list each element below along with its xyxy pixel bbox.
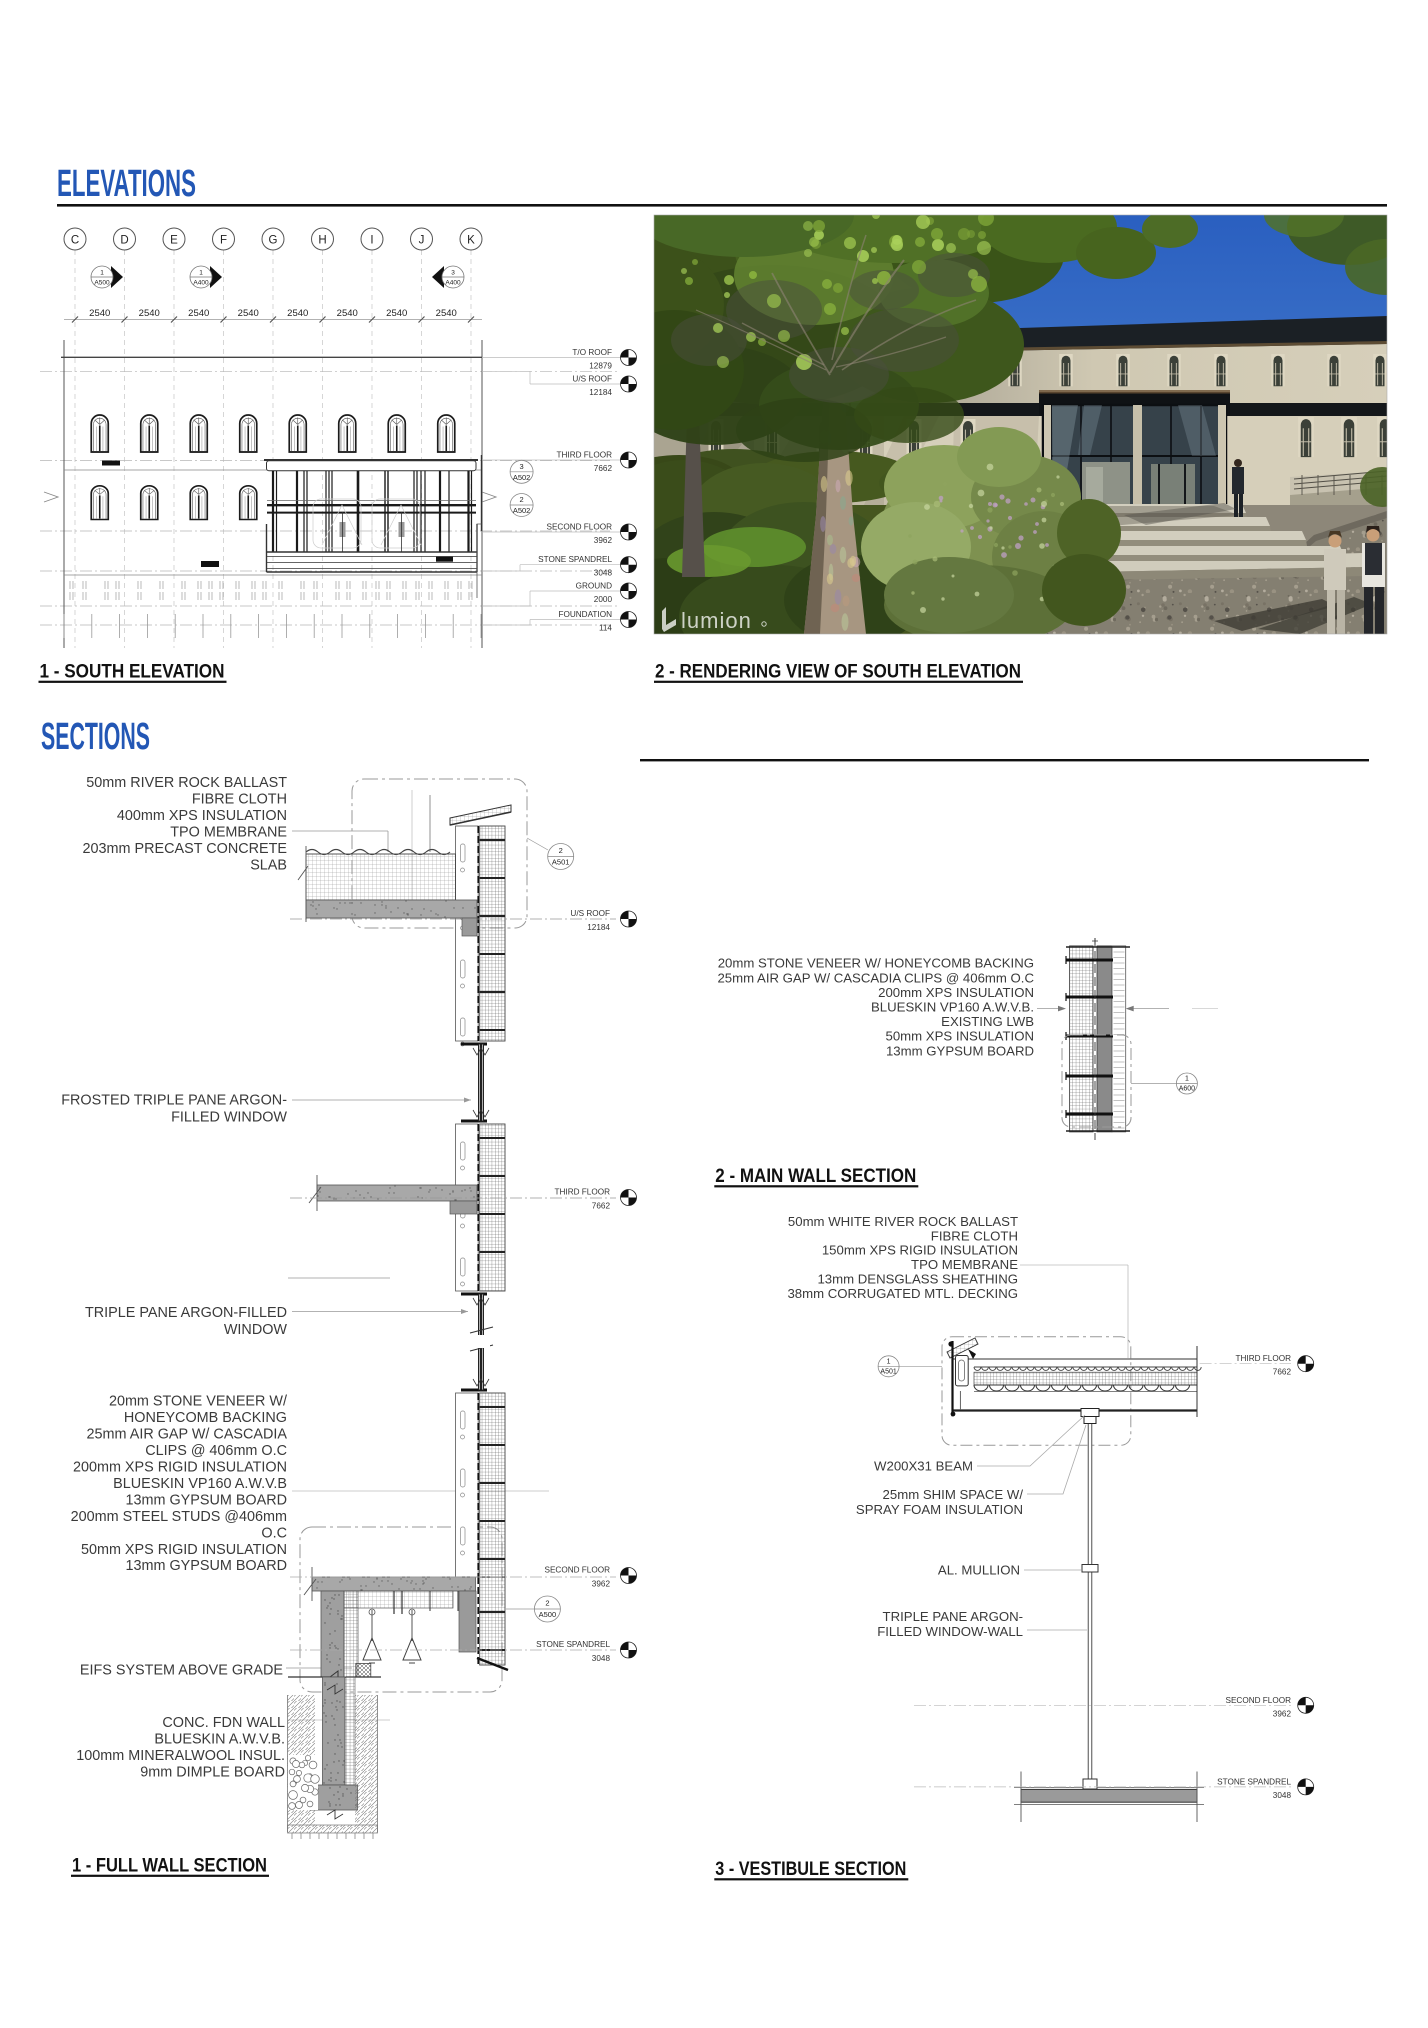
svg-text:2 - MAIN WALL SECTION: 2 - MAIN WALL SECTION xyxy=(715,1165,916,1187)
svg-text:20mm STONE VENEER W/ HONEYCOMB: 20mm STONE VENEER W/ HONEYCOMB BACKING xyxy=(718,956,1034,971)
svg-text:2540: 2540 xyxy=(238,308,259,319)
svg-text:3 - VESTIBULE SECTION: 3 - VESTIBULE SECTION xyxy=(715,1858,906,1880)
svg-text:203mm PRECAST CONCRETE: 203mm PRECAST CONCRETE xyxy=(83,841,287,857)
svg-text:150mm XPS RIGID INSULATION: 150mm XPS RIGID INSULATION xyxy=(822,1243,1018,1258)
svg-text:12879: 12879 xyxy=(589,362,612,371)
svg-text:FOUNDATION: FOUNDATION xyxy=(558,610,612,619)
svg-text:200mm XPS INSULATION: 200mm XPS INSULATION xyxy=(878,985,1034,1000)
svg-text:1 - FULL WALL SECTION: 1 - FULL WALL SECTION xyxy=(72,1855,267,1877)
svg-text:1: 1 xyxy=(887,1358,891,1365)
svg-text:CLIPS @ 406mm O.C: CLIPS @ 406mm O.C xyxy=(145,1443,287,1459)
svg-text:F: F xyxy=(220,235,227,247)
svg-text:SECOND FLOOR: SECOND FLOOR xyxy=(1225,1696,1291,1705)
svg-text:2540: 2540 xyxy=(436,308,457,319)
svg-text:TPO MEMBRANE: TPO MEMBRANE xyxy=(911,1257,1018,1272)
svg-text:I: I xyxy=(370,235,373,247)
svg-text:A502: A502 xyxy=(513,506,531,515)
svg-text:FILLED WINDOW-WALL: FILLED WINDOW-WALL xyxy=(877,1624,1023,1639)
svg-text:THIRD FLOOR: THIRD FLOOR xyxy=(555,1188,611,1197)
svg-text:12184: 12184 xyxy=(589,388,612,397)
svg-text:J: J xyxy=(419,235,425,247)
svg-text:A400: A400 xyxy=(193,280,209,287)
svg-text:A400: A400 xyxy=(445,280,461,287)
svg-text:20mm STONE VENEER W/: 20mm STONE VENEER W/ xyxy=(109,1394,287,1410)
svg-text:TPO MEMBRANE: TPO MEMBRANE xyxy=(170,825,287,841)
svg-text:A500: A500 xyxy=(94,280,110,287)
svg-text:O.C: O.C xyxy=(261,1525,287,1541)
svg-text:FILLED WINDOW: FILLED WINDOW xyxy=(171,1110,287,1126)
svg-text:W200X31 BEAM: W200X31 BEAM xyxy=(874,1458,973,1473)
svg-text:U/S ROOF: U/S ROOF xyxy=(572,375,612,384)
svg-text:K: K xyxy=(467,235,475,247)
svg-text:SECTIONS: SECTIONS xyxy=(41,716,150,758)
svg-text:100mm MINERALWOOL INSUL.: 100mm MINERALWOOL INSUL. xyxy=(76,1748,285,1764)
svg-text:3048: 3048 xyxy=(594,569,613,578)
svg-text:2: 2 xyxy=(545,1599,549,1608)
svg-text:STONE SPANDREL: STONE SPANDREL xyxy=(536,1640,610,1649)
svg-text:A501: A501 xyxy=(552,858,570,867)
svg-text:ELEVATIONS: ELEVATIONS xyxy=(57,163,196,205)
svg-text:7662: 7662 xyxy=(594,464,613,473)
svg-text:50mm WHITE RIVER ROCK BALLAST: 50mm WHITE RIVER ROCK BALLAST xyxy=(788,1214,1018,1229)
svg-text:400mm XPS INSULATION: 400mm XPS INSULATION xyxy=(117,808,287,824)
svg-text:2000: 2000 xyxy=(594,595,613,604)
svg-text:CONC. FDN WALL: CONC. FDN WALL xyxy=(162,1715,285,1731)
svg-text:1 - SOUTH ELEVATION: 1 - SOUTH ELEVATION xyxy=(40,661,225,683)
svg-text:3048: 3048 xyxy=(1273,1791,1292,1800)
svg-text:FROSTED TRIPLE PANE ARGON-: FROSTED TRIPLE PANE ARGON- xyxy=(61,1093,287,1109)
svg-text:3962: 3962 xyxy=(594,536,613,545)
svg-text:A500: A500 xyxy=(539,1610,557,1619)
svg-text:2540: 2540 xyxy=(386,308,407,319)
svg-text:13mm DENSGLASS SHEATHING: 13mm DENSGLASS SHEATHING xyxy=(817,1272,1018,1287)
svg-text:SECOND FLOOR: SECOND FLOOR xyxy=(546,523,612,532)
svg-text:STONE SPANDREL: STONE SPANDREL xyxy=(538,555,612,564)
svg-text:BLUESKIN VP160 A.W.V.B: BLUESKIN VP160 A.W.V.B xyxy=(113,1476,287,1492)
svg-text:7662: 7662 xyxy=(592,1202,611,1211)
svg-text:TRIPLE PANE ARGON-FILLED: TRIPLE PANE ARGON-FILLED xyxy=(85,1305,287,1321)
svg-text:200mm STEEL STUDS @406mm: 200mm STEEL STUDS @406mm xyxy=(71,1509,287,1525)
svg-text:SECOND FLOOR: SECOND FLOOR xyxy=(544,1566,610,1575)
svg-text:1: 1 xyxy=(100,270,104,277)
svg-text:38mm CORRUGATED MTL. DECKING: 38mm CORRUGATED MTL. DECKING xyxy=(787,1286,1018,1301)
svg-text:114: 114 xyxy=(599,624,612,633)
svg-text:HONEYCOMB BACKING: HONEYCOMB BACKING xyxy=(124,1410,287,1426)
svg-text:AL. MULLION: AL. MULLION xyxy=(938,1562,1020,1577)
svg-text:1: 1 xyxy=(199,270,203,277)
svg-text:FIBRE CLOTH: FIBRE CLOTH xyxy=(931,1228,1018,1243)
svg-text:25mm AIR GAP W/ CASCADIA CLIPS: 25mm AIR GAP W/ CASCADIA CLIPS @ 406mm O… xyxy=(717,970,1034,985)
svg-text:SLAB: SLAB xyxy=(250,858,287,874)
svg-text:2 - RENDERING VIEW OF SOUTH EL: 2 - RENDERING VIEW OF SOUTH ELEVATION xyxy=(655,661,1021,683)
svg-text:50mm RIVER ROCK BALLAST: 50mm RIVER ROCK BALLAST xyxy=(86,775,287,791)
svg-text:A501: A501 xyxy=(880,1368,896,1375)
svg-text:G: G xyxy=(269,235,278,247)
svg-text:EXISTING LWB: EXISTING LWB xyxy=(941,1014,1034,1029)
svg-text:2: 2 xyxy=(559,846,563,855)
svg-text:H: H xyxy=(318,235,326,247)
svg-text:E: E xyxy=(170,235,178,247)
svg-text:WINDOW: WINDOW xyxy=(224,1322,288,1338)
svg-text:3962: 3962 xyxy=(1273,1709,1292,1718)
svg-text:50mm XPS RIGID INSULATION: 50mm XPS RIGID INSULATION xyxy=(81,1542,287,1558)
svg-text:STONE SPANDREL: STONE SPANDREL xyxy=(1217,1777,1291,1786)
svg-text:BLUESKIN A.W.V.B.: BLUESKIN A.W.V.B. xyxy=(154,1732,285,1748)
svg-text:D: D xyxy=(120,235,128,247)
svg-text:1: 1 xyxy=(1185,1076,1189,1083)
svg-text:lumion: lumion xyxy=(681,608,752,633)
svg-text:C: C xyxy=(71,235,79,247)
svg-text:200mm XPS RIGID INSULATION: 200mm XPS RIGID INSULATION xyxy=(73,1460,287,1476)
svg-text:9mm DIMPLE BOARD: 9mm DIMPLE BOARD xyxy=(140,1764,285,1780)
svg-text:THIRD FLOOR: THIRD FLOOR xyxy=(1236,1354,1292,1363)
svg-text:EIFS SYSTEM ABOVE GRADE: EIFS SYSTEM ABOVE GRADE xyxy=(80,1663,283,1679)
svg-text:2540: 2540 xyxy=(89,308,110,319)
svg-text:T/O ROOF: T/O ROOF xyxy=(572,348,612,357)
svg-text:2540: 2540 xyxy=(287,308,308,319)
svg-text:2540: 2540 xyxy=(139,308,160,319)
svg-text:3962: 3962 xyxy=(592,1580,611,1589)
svg-text:13mm GYPSUM BOARD: 13mm GYPSUM BOARD xyxy=(886,1043,1034,1058)
svg-text:50mm XPS INSULATION: 50mm XPS INSULATION xyxy=(885,1029,1034,1044)
svg-text:2: 2 xyxy=(520,495,524,504)
svg-text:12184: 12184 xyxy=(587,923,610,932)
svg-text:13mm GYPSUM BOARD: 13mm GYPSUM BOARD xyxy=(125,1492,287,1508)
svg-text:SPRAY FOAM INSULATION: SPRAY FOAM INSULATION xyxy=(856,1502,1023,1517)
svg-text:U/S ROOF: U/S ROOF xyxy=(570,909,610,918)
svg-text:3: 3 xyxy=(451,270,455,277)
svg-text:A502: A502 xyxy=(513,473,531,482)
svg-text:7662: 7662 xyxy=(1273,1368,1292,1377)
svg-text:BLUESKIN VP160 A.W.V.B.: BLUESKIN VP160 A.W.V.B. xyxy=(871,1000,1034,1015)
svg-text:GROUND: GROUND xyxy=(576,582,612,591)
svg-text:2540: 2540 xyxy=(337,308,358,319)
svg-text:3: 3 xyxy=(520,462,524,471)
svg-text:25mm AIR GAP W/ CASCADIA: 25mm AIR GAP W/ CASCADIA xyxy=(87,1427,288,1443)
svg-text:2540: 2540 xyxy=(188,308,209,319)
svg-text:TRIPLE PANE ARGON-: TRIPLE PANE ARGON- xyxy=(883,1609,1023,1624)
svg-text:3048: 3048 xyxy=(592,1654,611,1663)
svg-text:THIRD FLOOR: THIRD FLOOR xyxy=(557,451,613,460)
svg-text:FIBRE CLOTH: FIBRE CLOTH xyxy=(192,792,287,808)
svg-text:25mm SHIM SPACE W/: 25mm SHIM SPACE W/ xyxy=(883,1487,1024,1502)
svg-text:13mm GYPSUM BOARD: 13mm GYPSUM BOARD xyxy=(125,1558,287,1574)
svg-text:A600: A600 xyxy=(1179,1086,1195,1093)
